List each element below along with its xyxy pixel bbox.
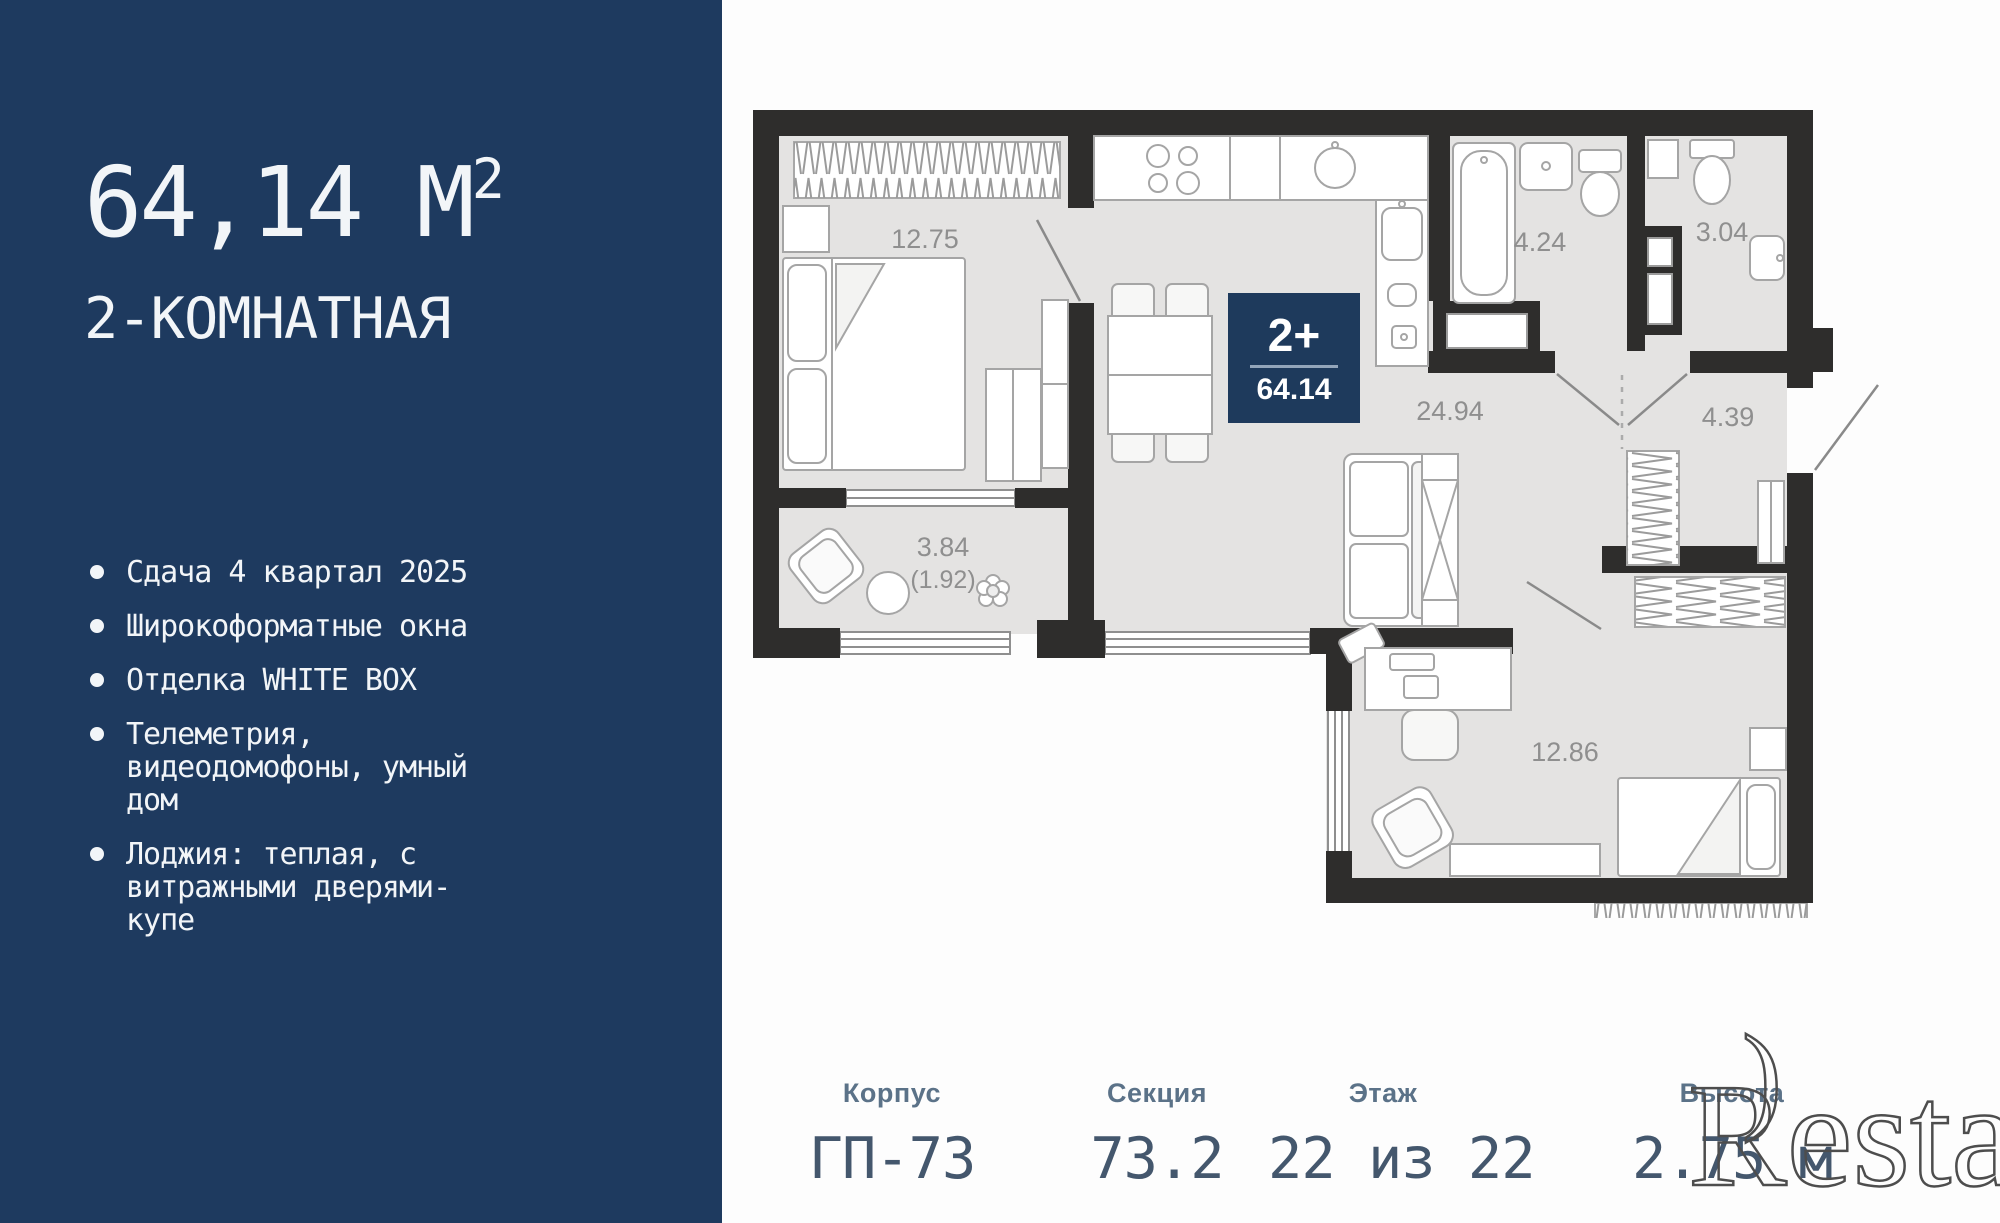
feature-item: Сдача 4 квартал 2025 [88,556,480,589]
area-value: 64,14 М [84,146,472,259]
stat-etazh-label: Этаж [1268,1078,1498,1109]
room-label-hall: 4.39 [1702,402,1755,432]
room-label-loggia-half: (1.92) [910,566,975,594]
floor-plan-drawing: 12.75 3.84 (1.92) 24.94 4.24 3.04 4.39 1… [750,88,1880,918]
feature-item: Лоджия: теплая, с витражными дверями-куп… [88,838,480,937]
stat-sekcia-value: 73.2 [1052,1126,1262,1192]
feature-item: Широкоформатные окна [88,610,480,643]
stat-sekcia-label: Секция [1052,1078,1262,1109]
apartment-type-badge: 2+ 64.14 [1228,293,1360,423]
stat-vysota: Высота 2.75 м [1612,1078,1852,1192]
apartment-area-title: 64,14 М2 [84,146,505,259]
stat-sekcia: Секция 73.2 [1052,1078,1262,1192]
area-superscript: 2 [472,147,505,211]
room-label-bedroom1: 12.75 [891,224,959,254]
feature-item: Телеметрия, видеодомофоны, умный дом [88,718,480,817]
room-label-wc: 3.04 [1696,217,1749,247]
sidebar: 64,14 М2 2-КОМНАТНАЯ Сдача 4 квартал 202… [0,0,722,1223]
stat-korpus-label: Корпус [782,1078,1002,1109]
feature-list: Сдача 4 квартал 2025 Широкоформатные окн… [88,556,480,937]
stat-etazh: Этаж 22 из 22 [1268,1078,1498,1192]
apartment-type-subtitle: 2-КОМНАТНАЯ [84,286,451,352]
stat-korpus-value: ГП-73 [782,1126,1002,1192]
stat-vysota-label: Высота [1612,1078,1852,1109]
badge-area: 64.14 [1256,375,1331,405]
room-label-loggia: 3.84 [917,532,970,562]
stat-etazh-value: 22 из 22 [1268,1126,1498,1192]
badge-divider [1250,365,1338,368]
feature-item: Отделка WHITE BOX [88,664,480,697]
room-label-kitchen-living: 24.94 [1416,396,1484,426]
stat-korpus: Корпус ГП-73 [782,1078,1002,1192]
floor-plan: 12.75 3.84 (1.92) 24.94 4.24 3.04 4.39 1… [750,88,1880,918]
room-label-bathroom: 4.24 [1514,227,1567,257]
room-label-bedroom2: 12.86 [1531,737,1599,767]
stat-vysota-value: 2.75 м [1612,1126,1852,1192]
badge-room-count: 2+ [1268,311,1320,359]
